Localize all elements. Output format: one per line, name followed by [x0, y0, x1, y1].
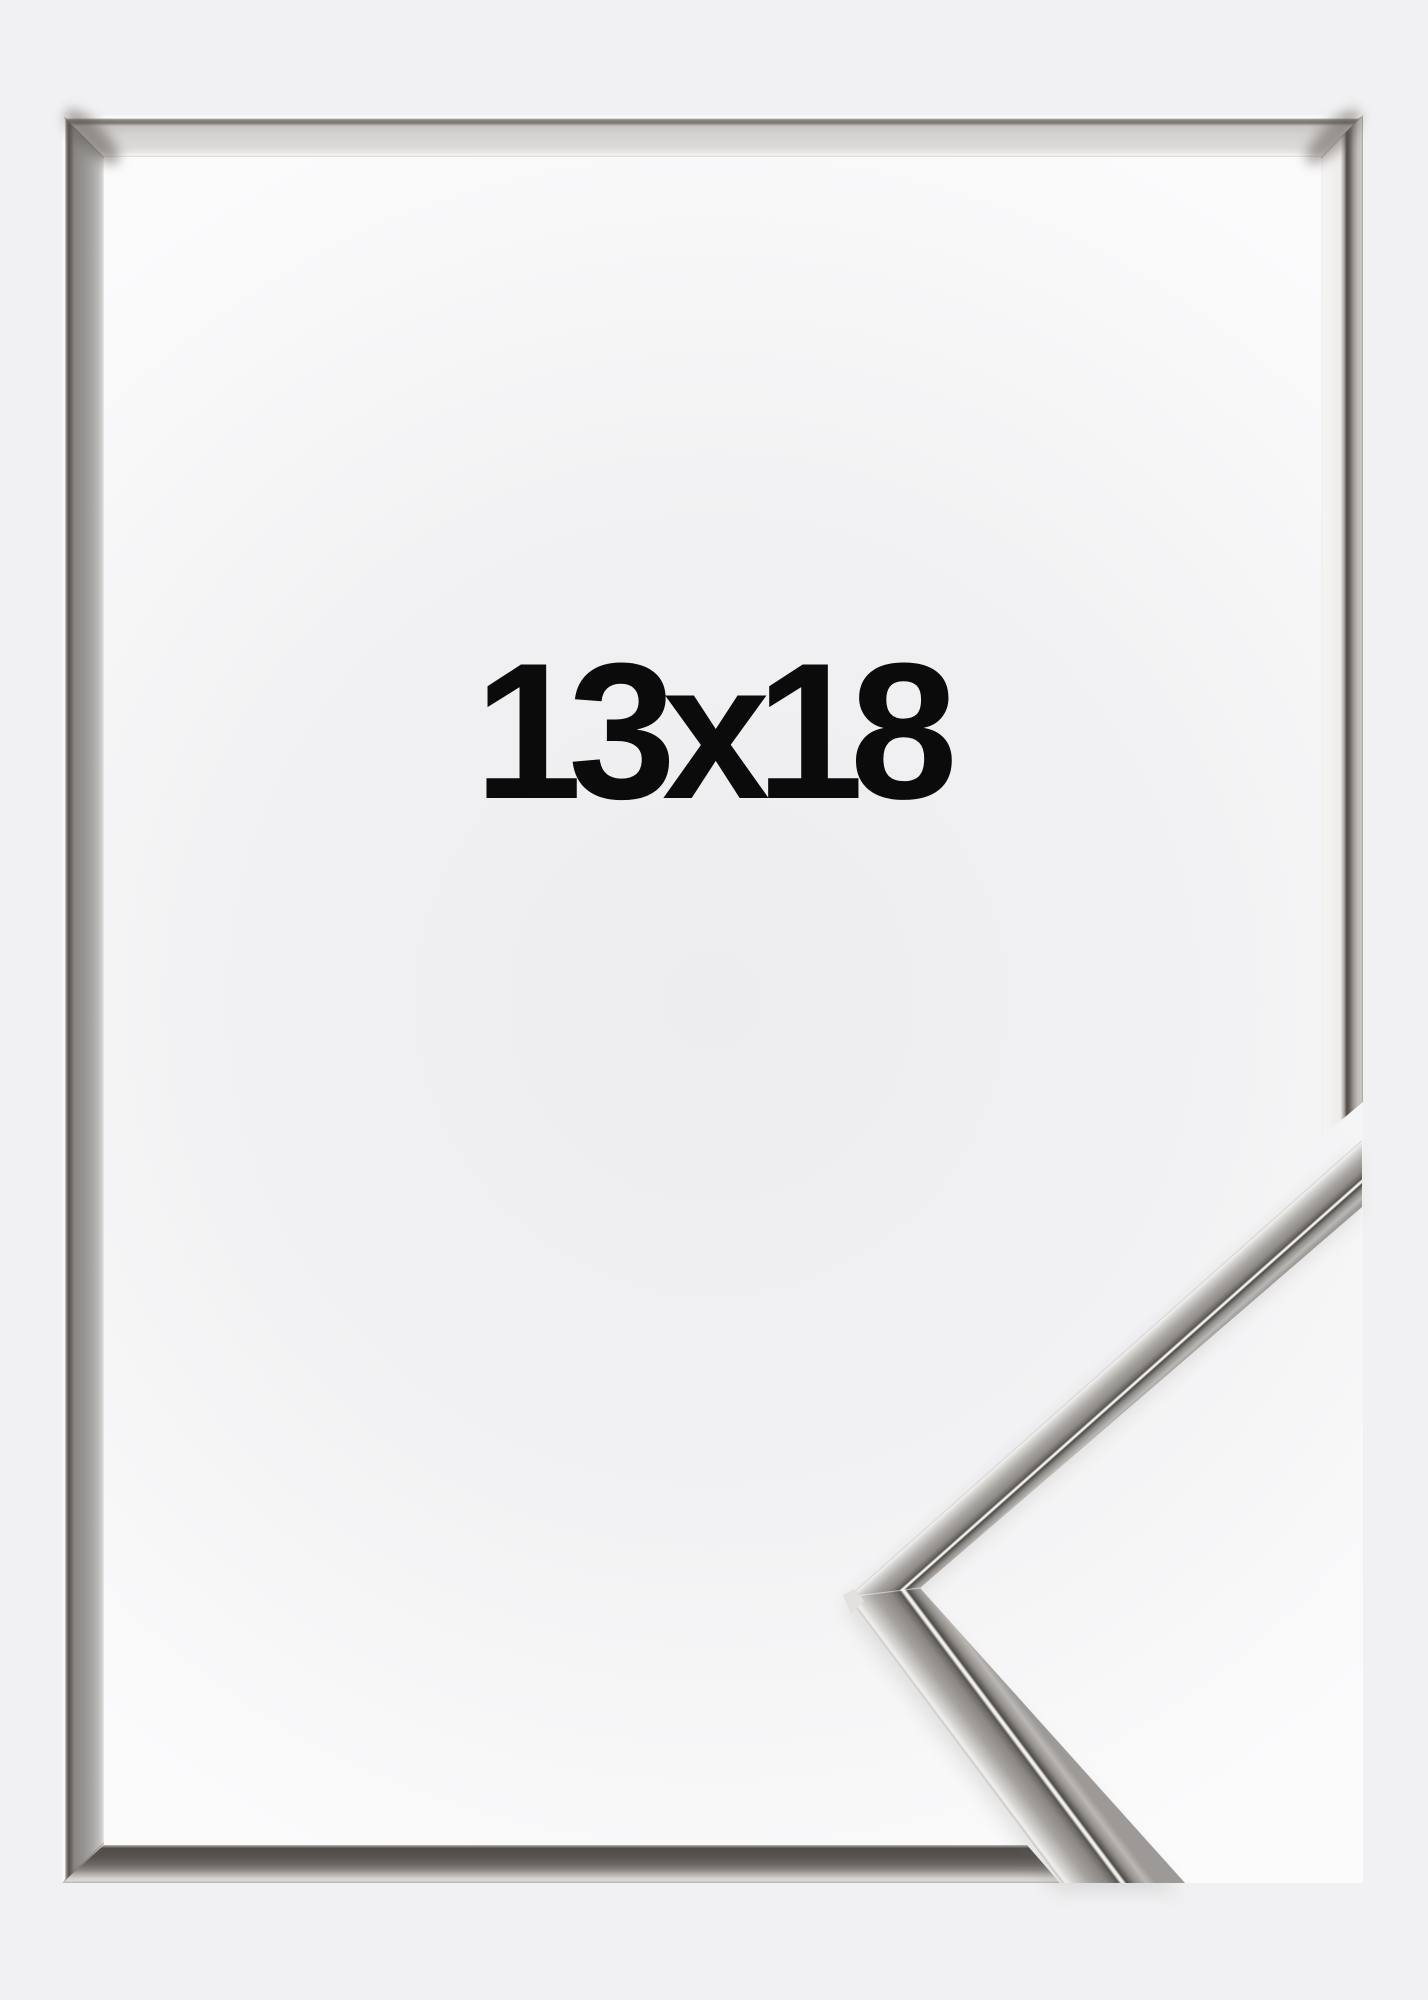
frame-product-photo: 13x18: [0, 0, 1428, 2000]
frame-left-rail: [62, 115, 104, 1883]
frame-top-rail: [62, 115, 1363, 157]
product-image: 13x18: [0, 0, 1428, 2000]
size-label: 13x18: [474, 623, 952, 840]
frame-right-rail: [1321, 115, 1363, 1137]
photo-interior: [62, 115, 1363, 1883]
frame-bottom-rail: [62, 1845, 1060, 1883]
